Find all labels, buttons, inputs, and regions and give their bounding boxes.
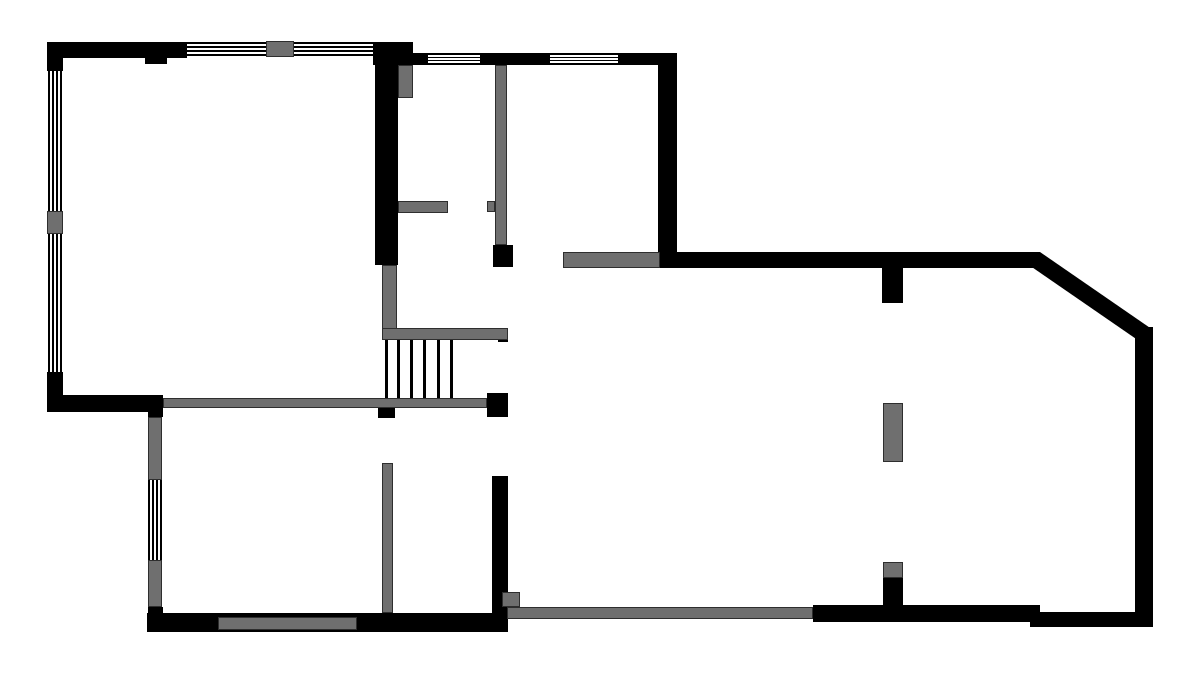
diagonal-wall xyxy=(1030,252,1153,344)
top-window-b xyxy=(294,42,373,56)
hall-wall-end-block xyxy=(493,245,513,267)
hall-vertical-gray-wall xyxy=(495,65,507,245)
mid-vertical-wall xyxy=(375,65,398,265)
rightroom-pillar-connector xyxy=(883,578,903,608)
staircase-tread-line-2 xyxy=(397,340,400,398)
bottom-wall-mid-seg xyxy=(813,605,1040,622)
top-window-a xyxy=(187,42,266,56)
livingroom-bottom-wall-gray xyxy=(163,398,487,408)
mid-top-window-b xyxy=(550,53,618,65)
left-wall-top-corner xyxy=(47,42,63,71)
mid-top-wall-b xyxy=(480,53,550,65)
stair-side-wall xyxy=(382,265,397,332)
left-window-lower xyxy=(48,234,62,372)
mid-top-window-a xyxy=(428,53,480,65)
top-wall-left xyxy=(47,42,187,58)
right-wall xyxy=(1135,327,1153,627)
livingroom-bottom-wall-black xyxy=(47,395,163,412)
staircase-tread-line-5 xyxy=(437,340,440,398)
left-window-divider xyxy=(47,211,63,234)
bottom-sliding-track xyxy=(507,607,813,619)
top-mid-corner-block xyxy=(373,42,413,65)
upper-gray-wall xyxy=(563,252,660,268)
staircase-tread-line-1 xyxy=(385,340,388,398)
upper-horizontal-wall xyxy=(658,252,1040,268)
bottomleft-window xyxy=(148,480,162,560)
bottomleft-leftwall-gray-lower xyxy=(148,560,162,607)
mid-right-vertical-wall xyxy=(658,53,677,268)
bottomleft-interior-wall xyxy=(382,463,393,613)
staircase-tread-line-6 xyxy=(450,340,453,398)
stair-rail xyxy=(382,328,508,340)
bottom-wall-right-seg xyxy=(1030,612,1153,627)
stair-bottom-block xyxy=(487,393,508,417)
rightroom-top-stub xyxy=(882,267,903,303)
hall-bottom-notch xyxy=(378,408,395,418)
floor-plan xyxy=(0,0,1200,683)
bottomleft-bottom-opening xyxy=(218,617,357,630)
bottomleft-leftwall-gray-upper xyxy=(148,417,162,480)
top-window-divider xyxy=(266,41,294,57)
mid-top-wall-a xyxy=(413,53,428,65)
rightroom-pillar-small xyxy=(883,562,903,578)
staircase-tread-line-4 xyxy=(423,340,426,398)
staircase-tread-line-3 xyxy=(410,340,413,398)
entry-door-leaf xyxy=(398,65,413,98)
top-wall-left-notch xyxy=(145,58,167,64)
hall-doorstop xyxy=(487,201,495,212)
hall-stub-wall xyxy=(398,201,448,213)
rightroom-pillar xyxy=(883,403,903,462)
left-window-upper xyxy=(48,71,62,211)
bottomleft-leftwall-top-block xyxy=(148,405,163,417)
bottomleft-right-wall xyxy=(492,476,508,632)
passage-gray-square xyxy=(502,592,520,607)
